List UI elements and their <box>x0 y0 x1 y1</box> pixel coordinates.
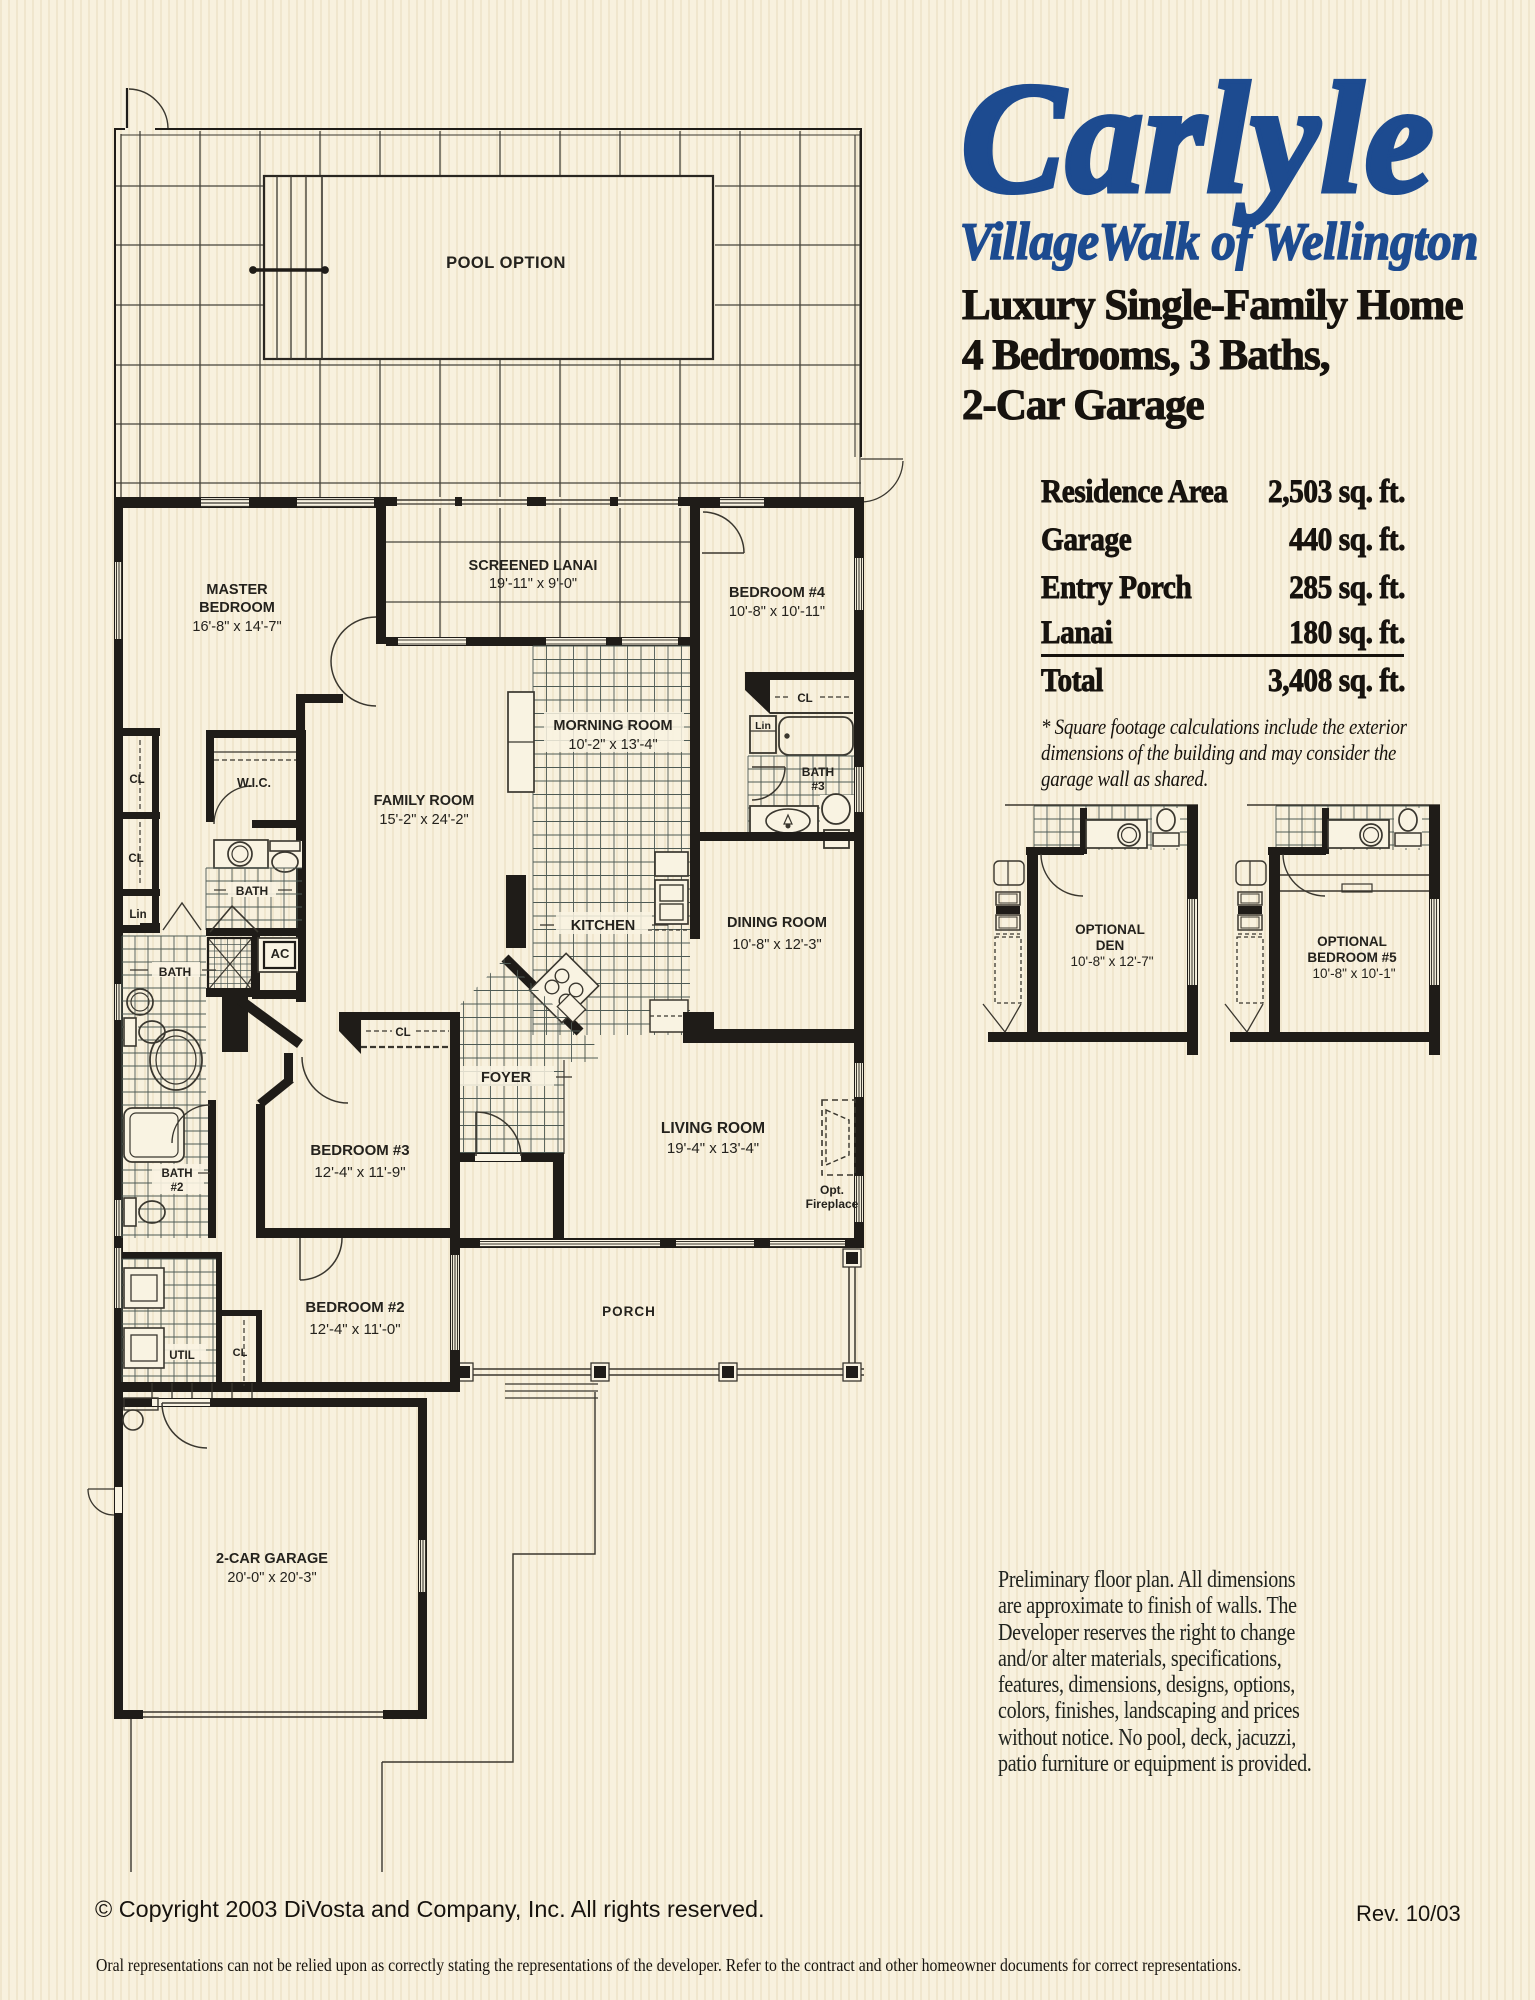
svg-text:CL: CL <box>395 1027 410 1039</box>
svg-text:DEN: DEN <box>1096 938 1125 953</box>
svg-text:BEDROOM #4: BEDROOM #4 <box>729 585 825 601</box>
svg-text:CL: CL <box>233 1347 248 1359</box>
svg-text:BATH: BATH <box>802 765 834 779</box>
svg-text:12'-4" x 11'-0": 12'-4" x 11'-0" <box>309 1321 400 1338</box>
svg-text:12'-4" x 11'-9": 12'-4" x 11'-9" <box>314 1164 405 1181</box>
svg-text:MASTER: MASTER <box>206 582 268 598</box>
svg-text:19'-4" x 13'-4": 19'-4" x 13'-4" <box>667 1140 759 1157</box>
svg-text:BATH: BATH <box>159 965 191 979</box>
svg-text:BEDROOM: BEDROOM <box>199 600 275 616</box>
svg-text:BATH: BATH <box>161 1168 192 1180</box>
svg-text:2-CAR GARAGE: 2-CAR GARAGE <box>216 1551 328 1567</box>
svg-text:15'-2" x 24'-2": 15'-2" x 24'-2" <box>379 812 468 828</box>
svg-text:CL: CL <box>128 853 143 865</box>
svg-text:Fireplace: Fireplace <box>806 1197 859 1211</box>
svg-text:BATH: BATH <box>236 884 268 898</box>
svg-text:FOYER: FOYER <box>481 1070 531 1086</box>
svg-text:BEDROOM #3: BEDROOM #3 <box>310 1142 409 1159</box>
svg-text:20'-0" x 20'-3": 20'-0" x 20'-3" <box>227 1570 316 1586</box>
svg-text:LIVING ROOM: LIVING ROOM <box>661 1120 765 1137</box>
svg-text:CL: CL <box>797 693 812 705</box>
svg-text:UTIL: UTIL <box>169 1350 195 1362</box>
svg-text:Opt.: Opt. <box>820 1183 844 1197</box>
svg-text:10'-8" x 12'-3": 10'-8" x 12'-3" <box>732 937 821 953</box>
svg-text:10'-8" x 10'-1": 10'-8" x 10'-1" <box>1312 966 1395 981</box>
svg-text:Lin: Lin <box>755 720 771 732</box>
svg-text:16'-8" x 14'-7": 16'-8" x 14'-7" <box>192 619 281 635</box>
svg-text:FAMILY ROOM: FAMILY ROOM <box>374 793 475 809</box>
svg-text:OPTIONAL: OPTIONAL <box>1317 934 1387 949</box>
svg-text:10'-8" x 12'-7": 10'-8" x 12'-7" <box>1070 954 1153 969</box>
svg-text:SCREENED LANAI: SCREENED LANAI <box>469 558 598 574</box>
svg-text:#3: #3 <box>811 779 825 793</box>
svg-text:10'-8" x 10'-11": 10'-8" x 10'-11" <box>729 604 825 620</box>
svg-text:Lin: Lin <box>129 909 146 921</box>
svg-text:10'-2" x 13'-4": 10'-2" x 13'-4" <box>568 737 657 753</box>
svg-text:19'-11" x 9'-0": 19'-11" x 9'-0" <box>489 576 577 592</box>
svg-text:BEDROOM #2: BEDROOM #2 <box>305 1299 404 1316</box>
svg-text:MORNING ROOM: MORNING ROOM <box>553 718 672 734</box>
svg-text:KITCHEN: KITCHEN <box>571 918 635 934</box>
svg-text:AC: AC <box>271 946 290 961</box>
svg-text:POOL OPTION: POOL OPTION <box>446 254 566 272</box>
svg-text:PORCH: PORCH <box>602 1304 656 1319</box>
svg-text:BEDROOM #5: BEDROOM #5 <box>1307 950 1397 965</box>
svg-text:#2: #2 <box>171 1182 184 1194</box>
svg-text:OPTIONAL: OPTIONAL <box>1075 922 1145 937</box>
svg-text:CL: CL <box>129 774 144 786</box>
svg-text:W.I.C.: W.I.C. <box>237 776 271 790</box>
svg-text:DINING ROOM: DINING ROOM <box>727 915 827 931</box>
